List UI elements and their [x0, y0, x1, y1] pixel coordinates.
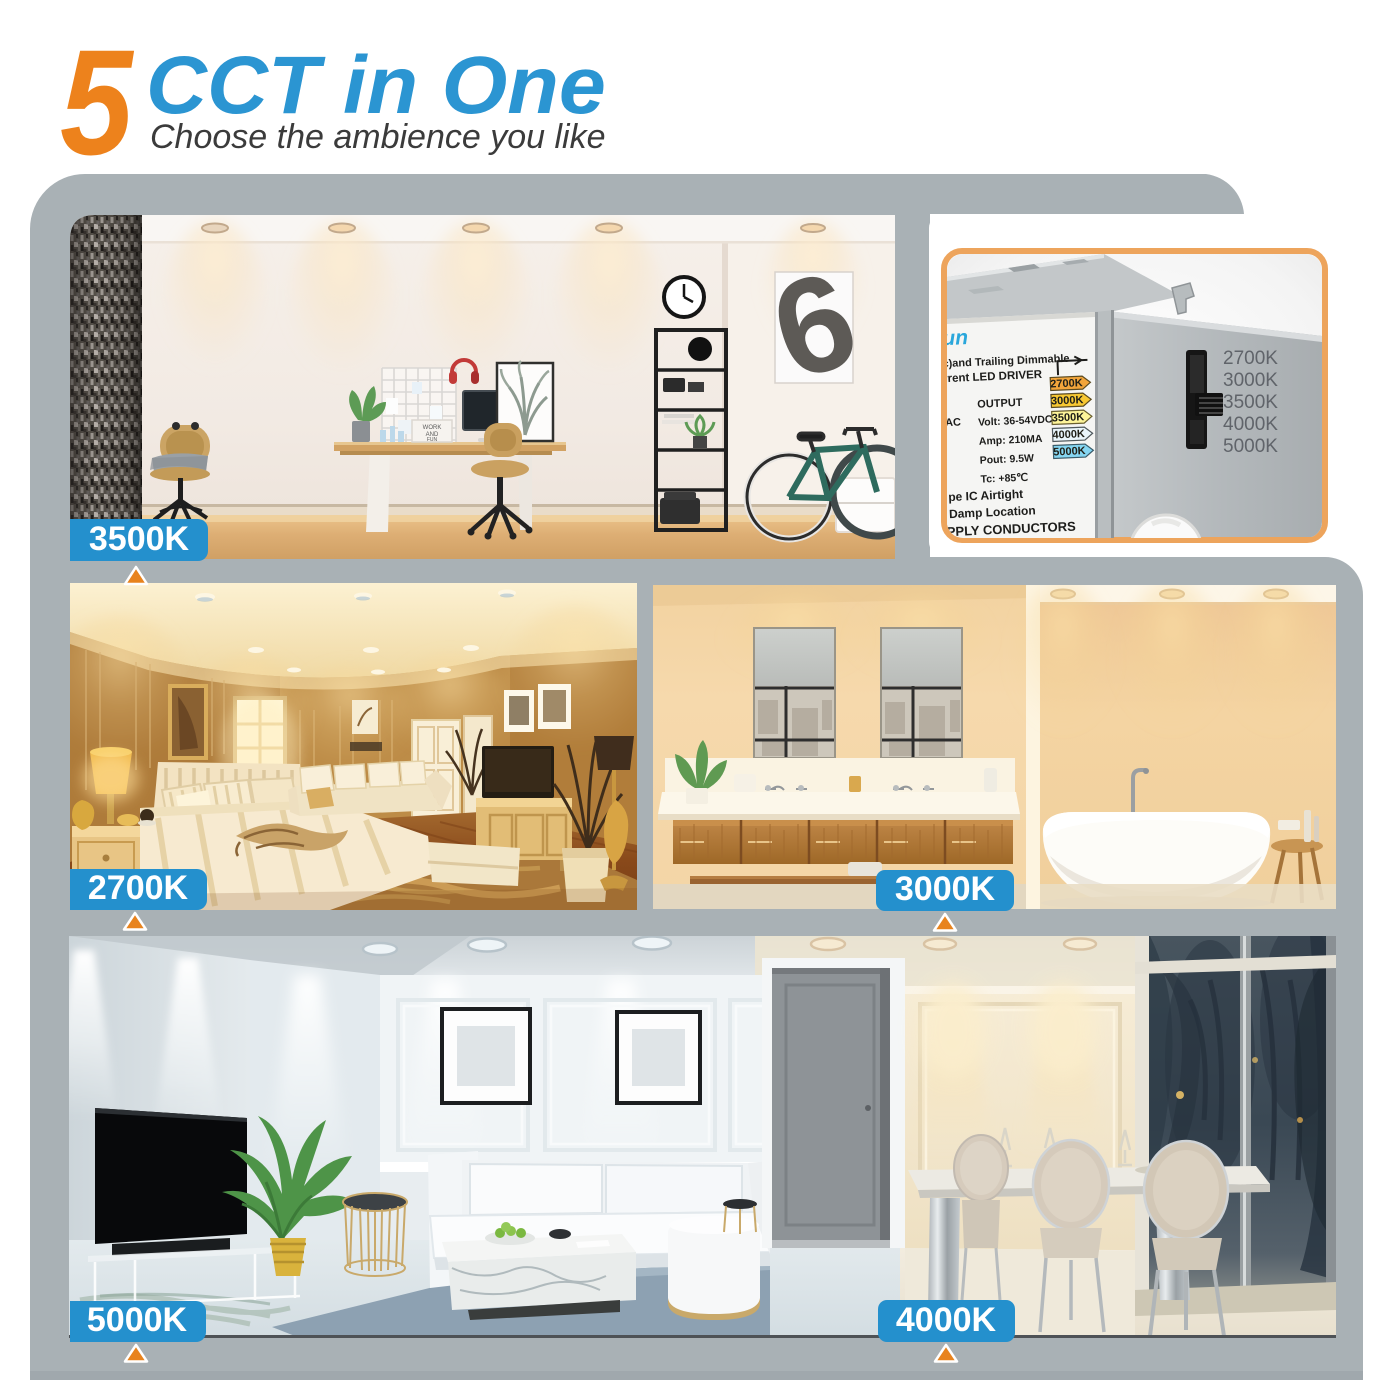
- svg-text:2700K: 2700K: [1223, 348, 1278, 369]
- svg-text:3000K: 3000K: [1051, 394, 1084, 407]
- svg-text:WORK: WORK: [423, 425, 442, 431]
- svg-text:Tc: +85℃: Tc: +85℃: [980, 472, 1028, 486]
- svg-text:3000K: 3000K: [895, 870, 996, 908]
- svg-text:3000K: 3000K: [1223, 370, 1278, 391]
- svg-text:AC: AC: [945, 416, 961, 429]
- svg-text:FUN: FUN: [427, 437, 438, 443]
- svg-text:5000K: 5000K: [1053, 445, 1086, 458]
- svg-text:3500K: 3500K: [1223, 392, 1278, 413]
- svg-text:4000K: 4000K: [1223, 414, 1278, 435]
- svg-text:5000K: 5000K: [87, 1301, 188, 1339]
- svg-text:Pout: 9.5W: Pout: 9.5W: [979, 452, 1034, 466]
- svg-text:4000K: 4000K: [1052, 428, 1085, 441]
- svg-text:2700K: 2700K: [1050, 377, 1083, 390]
- svg-text:2700K: 2700K: [88, 869, 189, 907]
- svg-text:OUTPUT: OUTPUT: [977, 397, 1023, 411]
- svg-text:3500K: 3500K: [1051, 411, 1084, 424]
- svg-text:4000K: 4000K: [896, 1301, 997, 1339]
- svg-text:3500K: 3500K: [89, 520, 190, 558]
- svg-text:5000K: 5000K: [1223, 436, 1278, 457]
